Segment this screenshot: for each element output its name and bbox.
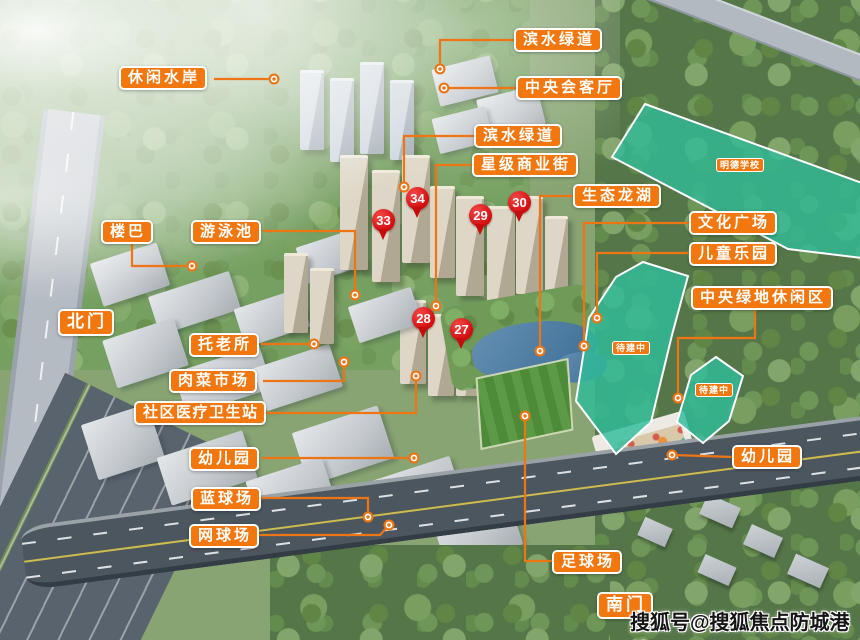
callout-waterfront-greenway-lower: 滨水绿道 (474, 124, 562, 148)
pin-tail-icon (418, 327, 428, 338)
watermark-text: 搜狐号@搜狐焦点防城港站 (630, 606, 860, 640)
construction-overlay-cluster-1 (576, 262, 688, 454)
callout-leisure-waterfront: 休闲水岸 (119, 66, 207, 90)
callout-senior-care-center: 托老所 (189, 333, 259, 357)
pin-tail-icon (475, 224, 485, 235)
callout-shuttle-bus: 楼巴 (101, 220, 153, 244)
callout-waterfront-greenway-upper: 滨水绿道 (514, 28, 602, 52)
callout-north-gate: 北门 (58, 309, 114, 336)
pin-tail-icon (514, 211, 524, 222)
pin-tail-icon (456, 338, 466, 349)
callout-kindergarten-left: 幼儿园 (189, 447, 259, 471)
callout-football-field: 足球场 (552, 550, 622, 574)
callout-basketball-court: 蓝球场 (191, 487, 261, 511)
callout-community-medical-station: 社区医疗卫生站 (134, 401, 266, 425)
pin-tail-icon (378, 229, 388, 240)
callout-central-reception-hall: 中央会客厅 (516, 76, 622, 100)
callout-central-green-leisure-area: 中央绿地休闲区 (691, 286, 833, 310)
building-pin-33: 33 (372, 209, 396, 243)
school-area-label: 明德学校 (716, 158, 764, 172)
callout-culture-plaza: 文化广场 (689, 211, 777, 235)
building-pin-34: 34 (406, 187, 430, 221)
callout-kindergarten-right: 幼儿园 (732, 445, 802, 469)
under-construction-label: 待建中 (612, 341, 650, 355)
construction-overlay-cluster-2 (677, 357, 743, 443)
site-plan-map: 明德学校 待建中 待建中 休闲水岸 滨水绿道 中央会客厅 滨水绿道 星级商业街 … (0, 0, 860, 640)
building-pin-27: 27 (450, 318, 474, 352)
callout-children-playground: 儿童乐园 (689, 242, 777, 266)
building-pin-30: 30 (508, 191, 532, 225)
pin-tail-icon (412, 207, 422, 218)
callout-star-commercial-street: 星级商业街 (472, 153, 578, 177)
callout-swimming-pool: 游泳池 (191, 220, 261, 244)
building-pin-29: 29 (469, 204, 493, 238)
callout-eco-dragon-lake: 生态龙湖 (573, 184, 661, 208)
building-pin-28: 28 (412, 307, 436, 341)
under-construction-label: 待建中 (695, 383, 733, 397)
callout-tennis-court: 网球场 (189, 524, 259, 548)
callout-meat-vegetable-market: 肉菜市场 (169, 369, 257, 393)
